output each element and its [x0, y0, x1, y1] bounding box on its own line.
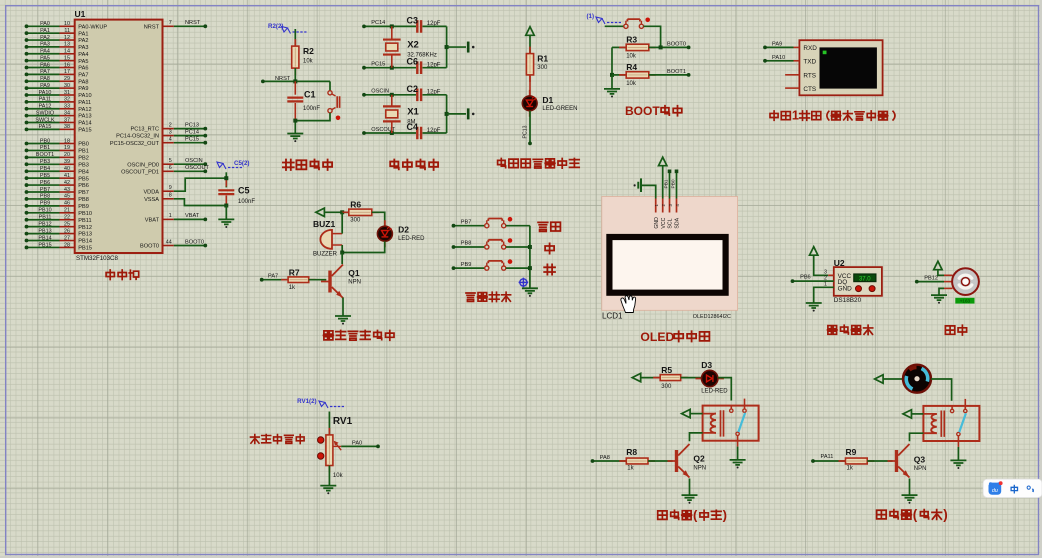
svg-text:Q3: Q3 — [914, 455, 926, 465]
svg-text:300: 300 — [537, 65, 548, 71]
svg-text:PB5: PB5 — [40, 173, 50, 179]
svg-text:OSCIN: OSCIN — [371, 89, 389, 95]
svg-text:PB7: PB7 — [40, 187, 50, 193]
svg-text:PB7: PB7 — [461, 219, 472, 225]
svg-text:PB12: PB12 — [78, 225, 92, 231]
svg-text:PB13: PB13 — [38, 228, 51, 234]
svg-text:PB15: PB15 — [78, 246, 92, 252]
svg-text:11: 11 — [64, 28, 70, 34]
svg-text:PA0-WKUP: PA0-WKUP — [78, 24, 107, 30]
svg-text:10k: 10k — [626, 54, 637, 60]
svg-text:PB8: PB8 — [78, 197, 89, 203]
svg-text:PA6: PA6 — [40, 62, 50, 68]
svg-text:2: 2 — [824, 275, 827, 281]
svg-text:D2: D2 — [398, 225, 409, 235]
svg-text:7: 7 — [169, 20, 172, 26]
svg-text:PB8: PB8 — [461, 241, 472, 247]
svg-text:C3: C3 — [407, 15, 419, 25]
svg-text:13: 13 — [64, 42, 70, 48]
svg-text:PA12: PA12 — [78, 107, 91, 113]
svg-text:PB0: PB0 — [670, 179, 676, 188]
svg-text:PA11: PA11 — [821, 454, 834, 460]
svg-text:PA2: PA2 — [40, 35, 50, 41]
svg-text:OLED: OLED — [640, 330, 674, 344]
svg-text:RV1: RV1 — [333, 416, 353, 427]
svg-text:PB3: PB3 — [78, 162, 89, 168]
svg-text:VDDA: VDDA — [143, 189, 159, 195]
svg-text:8M: 8M — [407, 119, 415, 125]
svg-text:45: 45 — [64, 194, 70, 200]
svg-text:PA8: PA8 — [600, 455, 610, 461]
svg-text:GND: GND — [654, 217, 660, 229]
svg-text:1: 1 — [792, 109, 799, 123]
svg-text:PA2: PA2 — [78, 38, 88, 44]
svg-text:PA4: PA4 — [78, 52, 88, 58]
svg-text:PB1: PB1 — [40, 145, 50, 151]
svg-text:LED-RED: LED-RED — [701, 389, 728, 395]
svg-text:12: 12 — [64, 35, 70, 41]
svg-text:BOOT: BOOT — [625, 104, 660, 118]
svg-text:PA11: PA11 — [39, 97, 51, 103]
svg-text:R5: R5 — [661, 365, 672, 375]
svg-text:28: 28 — [64, 242, 70, 248]
svg-text:4: 4 — [169, 137, 172, 143]
svg-text:(1): (1) — [587, 13, 595, 20]
svg-text:46: 46 — [64, 201, 70, 207]
svg-text:PA10: PA10 — [78, 93, 91, 99]
svg-text:NPN: NPN — [914, 466, 927, 472]
svg-text:NRST: NRST — [275, 76, 291, 82]
svg-text:BOOT0: BOOT0 — [185, 239, 204, 245]
svg-text:BUZZER: BUZZER — [313, 251, 338, 257]
svg-text:(: ( — [913, 507, 918, 522]
svg-text:PB15: PB15 — [38, 242, 51, 248]
svg-text:BOOT1: BOOT1 — [36, 152, 54, 158]
svg-text:X2: X2 — [407, 40, 419, 51]
svg-text:PA3: PA3 — [40, 42, 50, 48]
svg-text:3: 3 — [169, 129, 172, 135]
svg-text:PB4: PB4 — [40, 166, 50, 172]
svg-text:37.0: 37.0 — [859, 276, 871, 282]
svg-text:9: 9 — [169, 185, 172, 191]
svg-text:34: 34 — [64, 110, 70, 116]
svg-text:PA4: PA4 — [40, 49, 50, 55]
svg-text:10: 10 — [64, 21, 70, 27]
svg-text:43: 43 — [64, 187, 70, 193]
svg-text:PB14: PB14 — [78, 239, 92, 245]
svg-text:PA6: PA6 — [78, 66, 88, 72]
svg-text:PA7: PA7 — [40, 69, 50, 75]
svg-text:PC15: PC15 — [185, 137, 199, 143]
svg-text:R2(2): R2(2) — [268, 23, 283, 30]
svg-text:PC13: PC13 — [523, 125, 529, 138]
svg-text:OSCOUT: OSCOUT — [185, 165, 210, 171]
svg-text:NPN: NPN — [693, 466, 706, 472]
svg-text:PA1: PA1 — [40, 28, 50, 34]
svg-text:PC13_RTC: PC13_RTC — [131, 127, 160, 133]
svg-text:27: 27 — [64, 235, 70, 241]
svg-text:C2: C2 — [407, 84, 419, 94]
svg-text:44: 44 — [166, 239, 172, 245]
svg-text:PA15: PA15 — [39, 124, 52, 130]
svg-text:PB9: PB9 — [461, 262, 472, 268]
svg-text:(: ( — [693, 507, 698, 522]
svg-text:PA11: PA11 — [78, 100, 91, 106]
svg-text:16: 16 — [64, 62, 70, 68]
svg-text:X1: X1 — [407, 106, 419, 117]
svg-text:1k: 1k — [627, 465, 634, 471]
svg-text:PB12: PB12 — [924, 276, 938, 282]
svg-text:PA14: PA14 — [78, 121, 91, 127]
svg-text:PB11: PB11 — [78, 218, 91, 224]
svg-text:OSCOUT_PD1: OSCOUT_PD1 — [121, 169, 159, 175]
svg-text:PC14: PC14 — [371, 20, 385, 26]
svg-text:Q1: Q1 — [348, 268, 360, 278]
svg-text:PA9: PA9 — [40, 83, 50, 89]
svg-text:PA9: PA9 — [78, 86, 88, 92]
svg-text:PA10: PA10 — [39, 90, 52, 96]
svg-text:PA1: PA1 — [78, 31, 88, 37]
svg-text:D1: D1 — [542, 95, 553, 105]
svg-text:OSCIN: OSCIN — [185, 158, 203, 164]
svg-text:PA0: PA0 — [40, 21, 50, 27]
svg-text:300: 300 — [350, 218, 361, 224]
svg-text:VBAT: VBAT — [185, 213, 200, 219]
svg-text:29: 29 — [64, 76, 70, 82]
svg-text:18: 18 — [64, 138, 70, 144]
svg-text:PB0: PB0 — [78, 142, 89, 148]
svg-text:R8: R8 — [626, 447, 637, 457]
svg-text:STM32F103C8: STM32F103C8 — [76, 255, 119, 262]
svg-text:PC15-OSC32_OUT: PC15-OSC32_OUT — [110, 141, 160, 147]
svg-text:NRST: NRST — [144, 24, 160, 30]
svg-text:R4: R4 — [626, 62, 637, 72]
svg-text:30: 30 — [64, 83, 70, 89]
svg-text:SDA: SDA — [675, 217, 681, 228]
svg-text:RV1(2): RV1(2) — [297, 398, 317, 405]
svg-text:8: 8 — [169, 193, 172, 199]
svg-text:LED-RED: LED-RED — [398, 236, 425, 242]
svg-text:C5(2): C5(2) — [234, 160, 249, 167]
svg-text:LCD1: LCD1 — [602, 311, 623, 320]
svg-text:PB2: PB2 — [78, 155, 89, 161]
svg-text:LED-GREEN: LED-GREEN — [542, 106, 577, 112]
svg-text:41: 41 — [64, 173, 70, 179]
svg-text:RTS: RTS — [803, 73, 816, 80]
svg-text:PB9: PB9 — [78, 204, 89, 210]
svg-text:PA7: PA7 — [268, 273, 278, 279]
svg-text:DS18B20: DS18B20 — [834, 297, 862, 304]
svg-text:PB11: PB11 — [39, 215, 52, 221]
svg-text:PA12: PA12 — [39, 104, 52, 110]
svg-text:D3: D3 — [701, 360, 712, 370]
svg-text:PA15: PA15 — [78, 127, 91, 133]
svg-text:PC14: PC14 — [185, 129, 199, 135]
svg-text:R1: R1 — [537, 54, 548, 64]
svg-text:VCC: VCC — [661, 217, 667, 228]
svg-text:SWCLK: SWCLK — [35, 117, 55, 123]
svg-text:6: 6 — [169, 165, 172, 171]
svg-text:PB0: PB0 — [40, 138, 50, 144]
svg-text:R3: R3 — [626, 35, 637, 45]
svg-text:PB6: PB6 — [800, 275, 811, 281]
svg-text:PA5: PA5 — [40, 55, 50, 61]
svg-text:14: 14 — [64, 49, 70, 55]
svg-text:Q2: Q2 — [693, 454, 705, 464]
svg-text:): ) — [723, 507, 727, 522]
svg-text:1: 1 — [824, 282, 827, 288]
svg-text:BOOT0: BOOT0 — [140, 244, 159, 250]
svg-text:R7: R7 — [289, 267, 300, 277]
svg-text:39: 39 — [64, 159, 70, 165]
svg-text:PA7: PA7 — [78, 72, 88, 78]
svg-text:PB1: PB1 — [78, 149, 89, 155]
svg-text:1: 1 — [169, 213, 172, 219]
svg-text:VSSA: VSSA — [144, 197, 159, 203]
svg-text:300: 300 — [661, 384, 672, 390]
svg-text:10k: 10k — [303, 59, 314, 65]
svg-text:NPN: NPN — [348, 280, 361, 286]
svg-text:CTS: CTS — [803, 86, 816, 93]
svg-text:PA5: PA5 — [78, 59, 88, 65]
svg-text:PB9: PB9 — [40, 201, 50, 207]
svg-text:): ) — [943, 507, 947, 522]
svg-text:PA10: PA10 — [772, 55, 785, 61]
svg-text:PB10: PB10 — [38, 208, 51, 214]
svg-text:R6: R6 — [350, 199, 361, 209]
svg-text:PB3: PB3 — [40, 159, 50, 165]
svg-text:2: 2 — [169, 122, 172, 128]
svg-text:100nF: 100nF — [238, 199, 255, 205]
svg-text:42: 42 — [64, 180, 70, 186]
svg-text:1k: 1k — [847, 465, 854, 471]
svg-text:PB13: PB13 — [78, 232, 92, 238]
svg-text:22: 22 — [64, 215, 70, 221]
svg-text:PB8: PB8 — [40, 194, 50, 200]
svg-text:+163: +163 — [960, 299, 971, 304]
svg-text:SCL: SCL — [668, 218, 674, 228]
svg-text:32: 32 — [64, 97, 70, 103]
svg-text:C5: C5 — [238, 186, 250, 196]
svg-text:BOOT0: BOOT0 — [667, 42, 686, 48]
svg-text:PB14: PB14 — [38, 235, 51, 241]
svg-text:NRST: NRST — [185, 20, 201, 26]
svg-text:19: 19 — [64, 145, 70, 151]
svg-text:37: 37 — [64, 117, 70, 123]
svg-text:25: 25 — [64, 221, 70, 227]
svg-text:PA3: PA3 — [78, 45, 88, 51]
svg-text:PA13: PA13 — [78, 114, 91, 120]
svg-text:PB10: PB10 — [78, 211, 92, 217]
svg-text:PC15: PC15 — [371, 62, 385, 68]
svg-text:5: 5 — [169, 158, 172, 164]
svg-text:OLED12864I2C: OLED12864I2C — [693, 314, 731, 320]
svg-text:BUZ1: BUZ1 — [313, 219, 335, 229]
svg-text:PA8: PA8 — [78, 79, 88, 85]
svg-text:21: 21 — [64, 208, 70, 214]
svg-text:38: 38 — [64, 124, 70, 130]
svg-text:40: 40 — [64, 166, 70, 172]
svg-text:R2: R2 — [303, 46, 314, 56]
svg-text:26: 26 — [64, 228, 70, 234]
svg-text:BOOT1: BOOT1 — [667, 69, 686, 75]
svg-text:3: 3 — [824, 269, 827, 275]
svg-text:PC14-OSC32_IN: PC14-OSC32_IN — [116, 134, 159, 140]
svg-text:PB6: PB6 — [40, 180, 50, 186]
svg-text:PB6: PB6 — [78, 183, 89, 189]
svg-text:PB4: PB4 — [78, 169, 89, 175]
svg-text:RXD: RXD — [803, 45, 817, 52]
svg-text:PB5: PB5 — [78, 176, 89, 182]
svg-text:17: 17 — [64, 69, 70, 75]
svg-text:VBAT: VBAT — [145, 218, 160, 224]
svg-text:R9: R9 — [846, 447, 857, 457]
svg-text:PA0: PA0 — [352, 440, 362, 446]
svg-text:10k: 10k — [333, 473, 344, 479]
svg-text:10k: 10k — [626, 81, 637, 87]
svg-text:32.768KHz: 32.768KHz — [407, 53, 437, 59]
svg-text:C1: C1 — [304, 90, 316, 100]
svg-text:PB7: PB7 — [78, 190, 89, 196]
svg-text:PB1: PB1 — [663, 179, 669, 188]
svg-text:1k: 1k — [289, 285, 296, 291]
svg-text:PB12: PB12 — [38, 221, 51, 227]
svg-text:PC13: PC13 — [185, 122, 199, 128]
svg-text:33: 33 — [64, 104, 70, 110]
svg-text:PA8: PA8 — [40, 76, 50, 82]
svg-text:du: du — [992, 488, 998, 494]
svg-text:PA9: PA9 — [772, 42, 782, 48]
svg-text:20: 20 — [64, 152, 70, 158]
svg-text:TXD: TXD — [803, 59, 816, 66]
svg-text:GND: GND — [838, 286, 853, 293]
svg-text:U1: U1 — [75, 9, 86, 19]
svg-text:31: 31 — [64, 90, 70, 96]
svg-text:100nF: 100nF — [303, 106, 320, 112]
svg-text:SWDIO: SWDIO — [36, 110, 54, 116]
svg-text:15: 15 — [64, 55, 70, 61]
svg-text:OSCIN_PD0: OSCIN_PD0 — [127, 162, 159, 168]
